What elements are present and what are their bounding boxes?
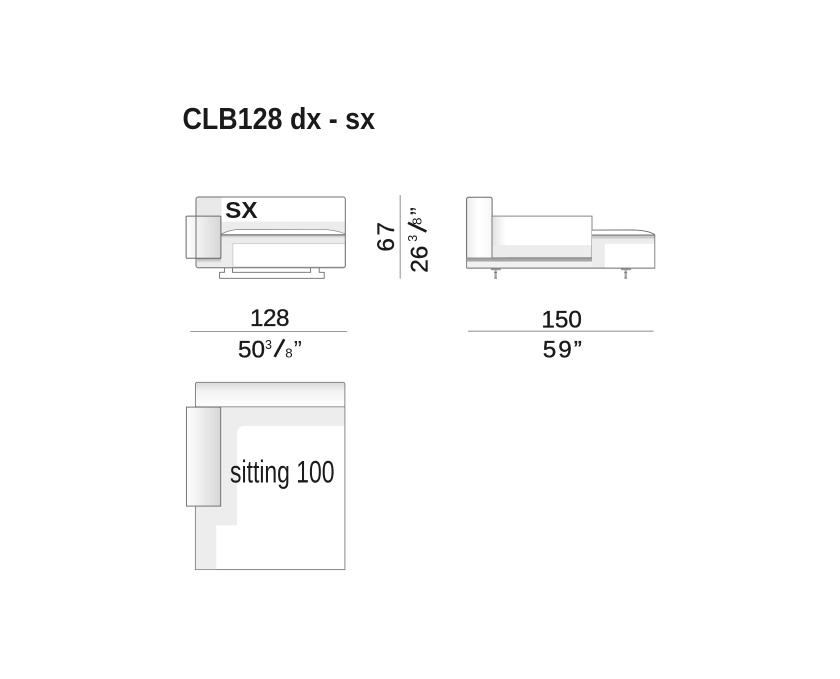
- svg-text:128: 128: [250, 305, 290, 332]
- svg-text:CLB128 dx - sx: CLB128 dx - sx: [183, 102, 376, 136]
- svg-text:26: 26: [407, 246, 434, 273]
- svg-text:3: 3: [406, 235, 420, 242]
- svg-text:8: 8: [410, 218, 425, 225]
- svg-text:sitting 100: sitting 100: [230, 453, 335, 489]
- svg-text:8: 8: [285, 346, 292, 361]
- svg-text:59”: 59”: [543, 336, 582, 363]
- svg-text:50: 50: [238, 337, 265, 364]
- svg-text:SX: SX: [225, 197, 258, 223]
- svg-text:”: ”: [406, 207, 433, 215]
- svg-text:”: ”: [294, 337, 302, 364]
- svg-text:3: 3: [265, 338, 272, 352]
- svg-text:150: 150: [541, 306, 582, 333]
- svg-text:67: 67: [373, 222, 400, 252]
